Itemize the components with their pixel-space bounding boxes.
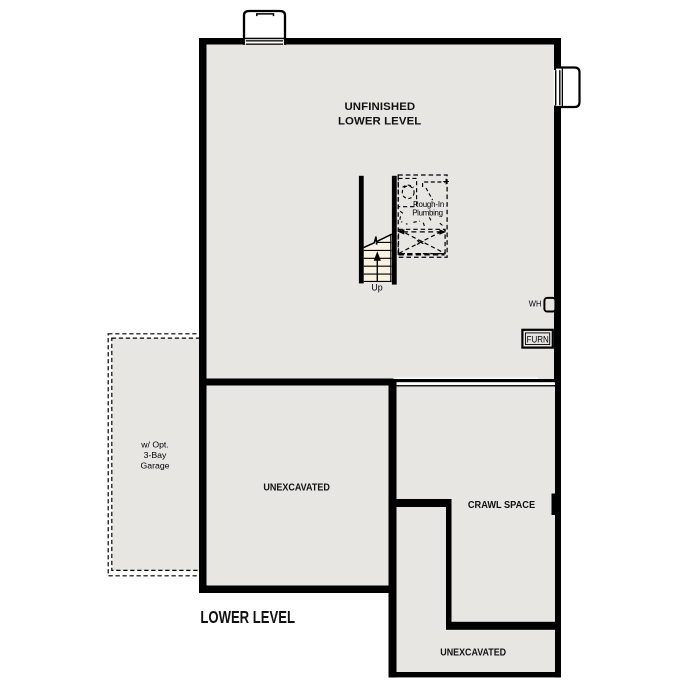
svg-text:LOWER LEVEL: LOWER LEVEL <box>200 607 295 627</box>
svg-text:w/ Opt.: w/ Opt. <box>140 440 169 450</box>
svg-text:CRAWL SPACE: CRAWL SPACE <box>468 500 535 511</box>
svg-text:Plumbing: Plumbing <box>412 208 443 217</box>
svg-text:Garage: Garage <box>141 461 170 471</box>
svg-text:WH: WH <box>529 299 542 309</box>
svg-text:UNEXCAVATED: UNEXCAVATED <box>263 482 330 493</box>
svg-text:UNFINISHED: UNFINISHED <box>344 101 415 113</box>
svg-text:UNEXCAVATED: UNEXCAVATED <box>440 648 506 659</box>
svg-text:3-Bay: 3-Bay <box>144 450 167 460</box>
svg-text:FURN: FURN <box>527 334 549 344</box>
svg-text:LOWER LEVEL: LOWER LEVEL <box>338 115 421 127</box>
svg-text:Up: Up <box>371 283 382 293</box>
